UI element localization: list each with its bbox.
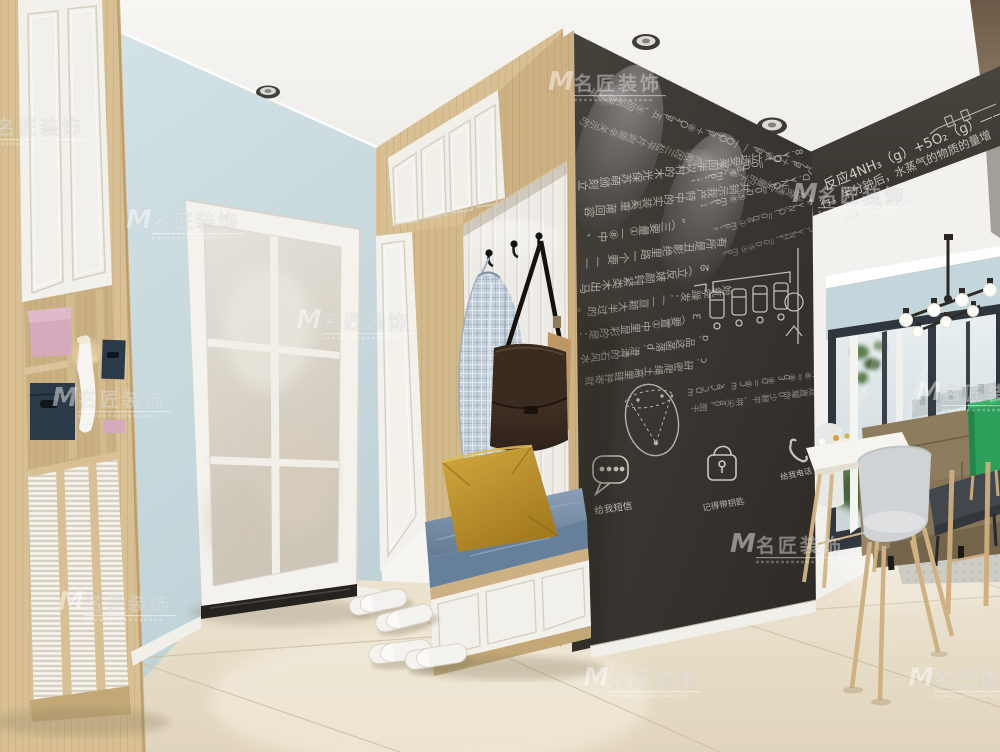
watermark-logo-icon: M bbox=[583, 663, 609, 693]
watermark-brand-text: 名匠装饰 bbox=[942, 382, 1000, 405]
ceiling-spotlight-icon bbox=[632, 34, 660, 50]
cabinet-upper-doors bbox=[18, 0, 112, 302]
watermark-brand-text: 名匠装饰 bbox=[934, 668, 1000, 691]
watermark-brand-text: 名匠装饰 bbox=[78, 388, 166, 411]
watermark-brand-text: 名匠装饰 bbox=[818, 184, 906, 207]
watermark-brand-text: 名匠装饰 bbox=[322, 310, 410, 333]
watermark-logo-icon: M bbox=[52, 383, 78, 413]
watermark-logo-icon: M bbox=[916, 377, 942, 407]
cabinet-cubbies bbox=[24, 285, 126, 470]
watermark-brand-text: 名匠装饰 bbox=[0, 116, 84, 139]
watermark-brand-text: 名匠装饰 bbox=[756, 534, 844, 557]
interior-render-scene: 反应4NH₃（g）+5O₂（g）—— 4N 行，半分钟后，水蒸气的物质的量增 ∞… bbox=[0, 0, 1000, 752]
watermark-brand-text: 名匠装饰 bbox=[609, 668, 697, 691]
watermark-brand-text: 名匠装饰 bbox=[84, 592, 172, 615]
watermark-brand-text: 名匠装饰 bbox=[152, 210, 240, 233]
watermark-brand-text: 名匠装饰 bbox=[574, 72, 662, 95]
watermark-logo-icon: M bbox=[792, 179, 818, 209]
watermark-logo-icon: M bbox=[58, 587, 84, 617]
watermark-logo-icon: M bbox=[296, 305, 322, 335]
balcony-door-frame bbox=[850, 335, 858, 534]
watermark-logo-icon: M bbox=[730, 529, 756, 559]
watermark-logo-icon: M bbox=[548, 67, 574, 97]
pink-box-small bbox=[104, 420, 125, 433]
watermark-logo-icon: M bbox=[908, 663, 934, 693]
pink-box bbox=[27, 307, 74, 357]
navy-storage-box bbox=[101, 340, 125, 380]
watermark-logo-icon: M bbox=[126, 205, 152, 235]
